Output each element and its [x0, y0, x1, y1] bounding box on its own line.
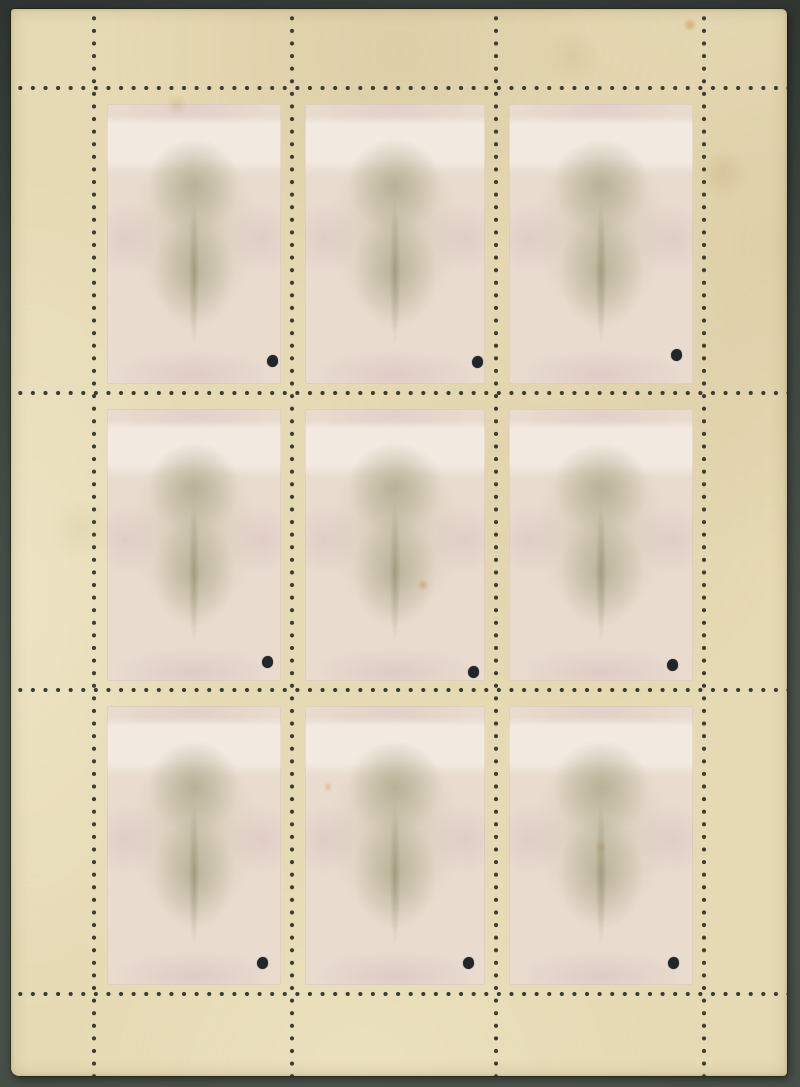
punch-hole: [262, 656, 273, 668]
stamp: [292, 393, 496, 690]
stamp-sheet: [11, 9, 787, 1076]
stamp: [496, 88, 704, 393]
stamp-ghost-impression: [509, 104, 693, 384]
punch-hole: [472, 356, 483, 368]
perforation-row: [11, 687, 787, 693]
perforation-row: [11, 390, 787, 396]
punch-hole: [463, 957, 474, 969]
stamp: [94, 690, 292, 994]
stamp: [496, 393, 704, 690]
stamp-ghost-impression: [305, 706, 485, 985]
stamp: [292, 88, 496, 393]
stamp-ghost-impression: [305, 104, 485, 384]
perforation-column: [701, 9, 707, 1076]
punch-hole: [667, 659, 678, 671]
perforation-row: [11, 85, 787, 91]
perforation-column: [289, 9, 295, 1076]
perforation-row: [11, 991, 787, 997]
stamp: [292, 690, 496, 994]
punch-hole: [671, 349, 682, 361]
stamp-ghost-impression: [305, 409, 485, 681]
stamp: [496, 690, 704, 994]
stamp: [94, 88, 292, 393]
photo-backdrop: [0, 0, 800, 1087]
perforation-column: [91, 9, 97, 1076]
stamp-ghost-impression: [107, 706, 281, 985]
perforation-column: [493, 9, 499, 1076]
stamp-ghost-impression: [509, 409, 693, 681]
punch-hole: [468, 666, 479, 678]
paper-stain: [683, 18, 697, 32]
stamp-ghost-impression: [509, 706, 693, 985]
stamp-ghost-impression: [107, 409, 281, 681]
paper-stain: [541, 27, 601, 87]
stamp-ghost-impression: [107, 104, 281, 384]
punch-hole: [257, 957, 268, 969]
punch-hole: [668, 957, 679, 969]
stamp: [94, 393, 292, 690]
punch-hole: [267, 355, 278, 367]
